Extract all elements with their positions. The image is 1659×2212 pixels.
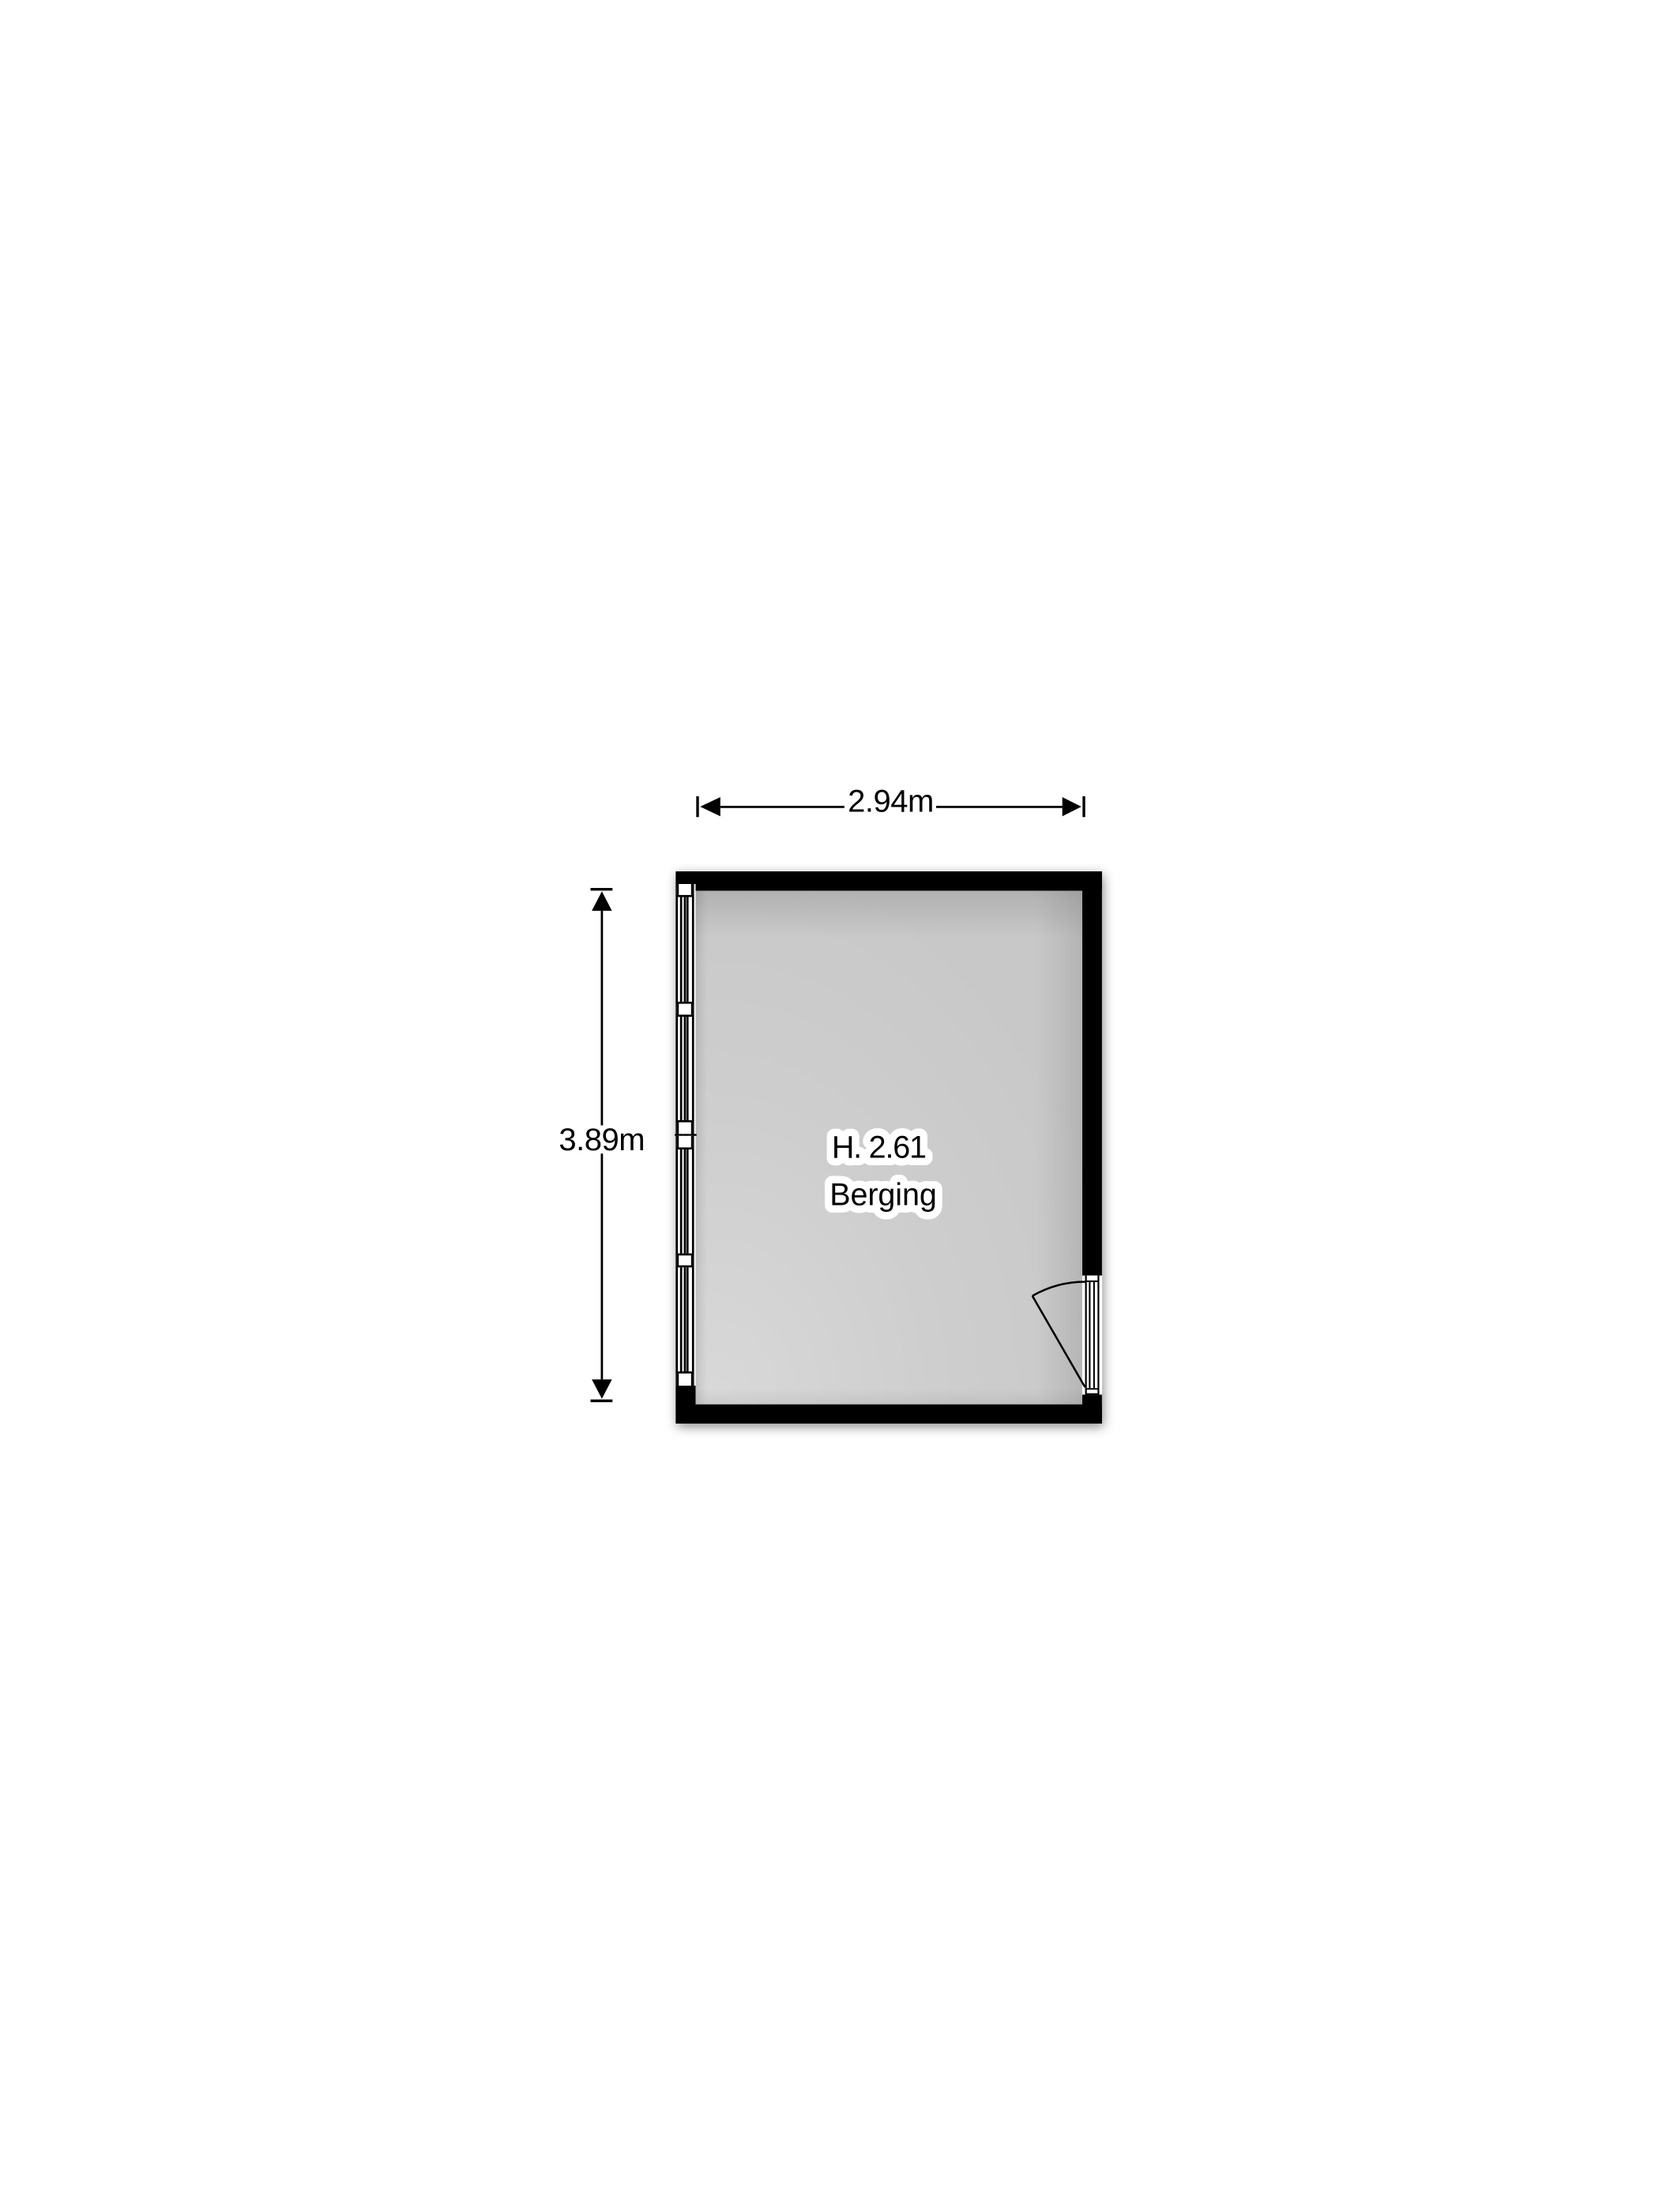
svg-text:H. 2.61: H. 2.61: [832, 1130, 926, 1164]
svg-text:Berging: Berging: [829, 1177, 936, 1212]
svg-text:3.89m: 3.89m: [559, 1123, 645, 1157]
svg-text:2.94m: 2.94m: [848, 784, 934, 819]
